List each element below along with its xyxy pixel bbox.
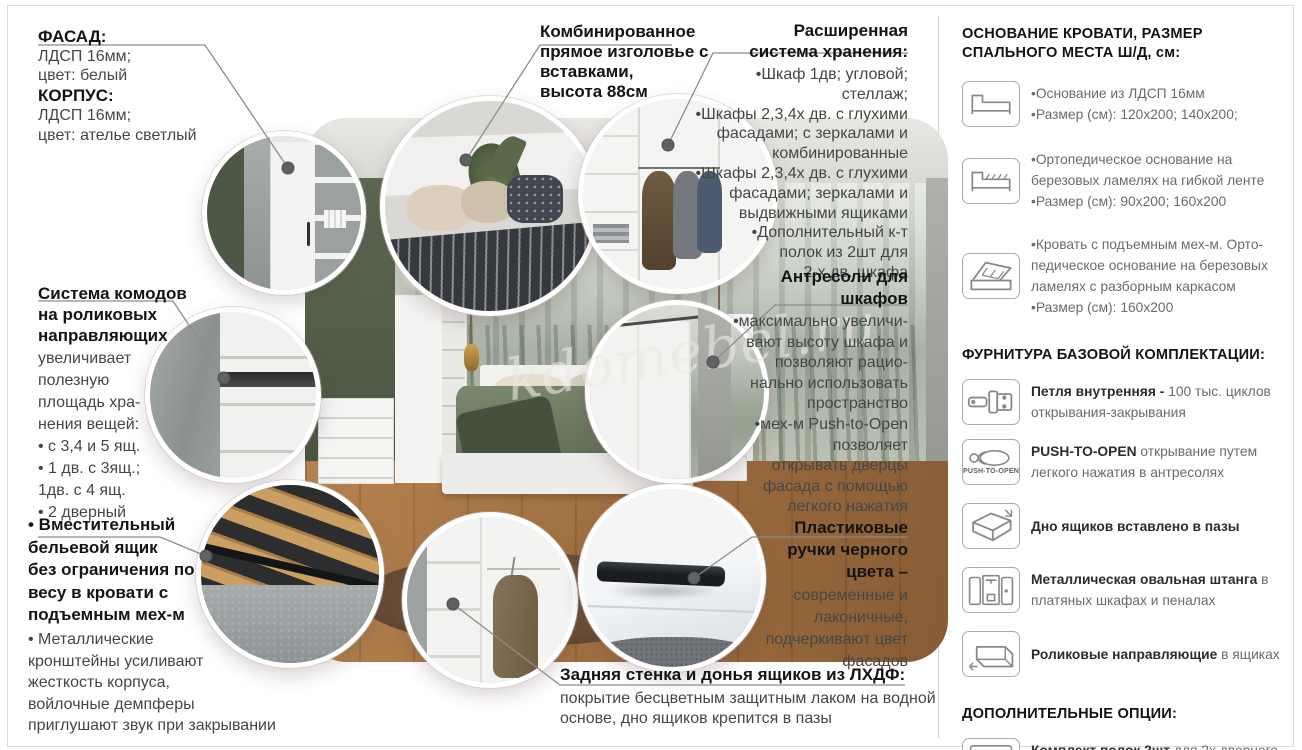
options-item: Комплект полок 2шт для 2х дверного шкафа xyxy=(962,738,1292,750)
bed-base-title: ОСНОВАНИЕ КРОВАТИ, РАЗМЕРСПАЛЬНОГО МЕСТА… xyxy=(962,25,1292,63)
hardware-item-text: Роликовые направляющие в ящиках xyxy=(1031,644,1292,665)
bed-item: •Кровать с подъемным мех-м. Орто-педичес… xyxy=(962,234,1292,318)
callout-body: • Металлическиекронштейны усиливаютжестк… xyxy=(28,629,284,737)
hardware-item-text: Металлическая овальная штанга в платяных… xyxy=(1031,569,1292,611)
bed-item: •Основание из ЛДСП 16мм•Размер (см): 120… xyxy=(962,81,1292,127)
options-item-text: Комплект полок 2шт для 2х дверного шкафа xyxy=(1031,740,1292,750)
shelves-icon xyxy=(962,738,1020,750)
hardware-item-text: PUSH-TO-OPEN открывание путем легкого на… xyxy=(1031,441,1292,483)
callout-title: Антресоли дляшкафов xyxy=(700,266,908,309)
drawer-roller-icon xyxy=(962,631,1020,677)
hardware-item-text: Петля внутренняя - 100 тыс. циклов откры… xyxy=(1031,381,1292,423)
callout-storage-system: Расширеннаясистема хранения: •Шкаф 1дв; … xyxy=(690,20,908,283)
hardware-item: Металлическая овальная штанга в платяных… xyxy=(962,567,1292,613)
photo-circle-wardrobe-interior xyxy=(402,512,578,688)
callout-linen-drawer: • Вместительныйбельевой ящикбез ограниче… xyxy=(28,514,284,737)
infographic-page: kdomebel.ru ФАСАД:ЛДСП 16мм;цвет: белыйК… xyxy=(0,0,1302,750)
callout-back-wall: Задняя стенка и донья ящиков из ЛХДФ: по… xyxy=(560,665,940,729)
bed-slats-icon xyxy=(962,158,1020,204)
push-to-open-label: PUSH-TO-OPEN xyxy=(963,468,1019,476)
hardware-item-text: Дно ящиков вставлено в пазы xyxy=(1031,516,1292,537)
callout-title: Расширеннаясистема хранения: xyxy=(690,20,908,62)
hardware-item: Дно ящиков вставлено в пазы xyxy=(962,503,1292,549)
bed-item-text: •Кровать с подъемным мех-м. Орто-педичес… xyxy=(1031,234,1292,318)
callout-handles: Пластиковыеручки черногоцвета – современ… xyxy=(720,517,908,673)
bed-item-text: •Основание из ЛДСП 16мм•Размер (см): 120… xyxy=(1031,83,1292,125)
callout-body: •максимально увеличи-вают высоту шкафа и… xyxy=(700,312,908,518)
callout-title: • Вместительныйбельевой ящикбез ограниче… xyxy=(28,514,284,627)
callout-facade: ФАСАД:ЛДСП 16мм;цвет: белыйКОРПУС:ЛДСП 1… xyxy=(38,27,268,145)
options-title: ДОПОЛНИТЕЛЬНЫЕ ОПЦИИ: xyxy=(962,705,1292,724)
callout-title: Система комодовна роликовыхнаправляющих xyxy=(38,283,228,346)
bed-item: •Ортопедическое основание наберезовых ла… xyxy=(962,149,1292,212)
chest-of-drawers xyxy=(318,398,394,484)
callout-title: Пластиковыеручки черногоцвета – xyxy=(720,517,908,583)
push-to-open-icon: PUSH-TO-OPEN xyxy=(962,439,1020,485)
callout-body: современные илаконичные,подчеркивают цве… xyxy=(720,585,908,673)
wardrobe-rail-icon xyxy=(962,567,1020,613)
hardware-item: PUSH-TO-OPEN PUSH-TO-OPEN открывание пут… xyxy=(962,439,1292,485)
hardware-title: ФУРНИТУРА БАЗОВОЙ КОМПЛЕКТАЦИИ: xyxy=(962,346,1292,365)
bed-base-icon xyxy=(962,81,1020,127)
photo-circle-headboard xyxy=(380,96,600,316)
drawer-bottom-icon xyxy=(962,503,1020,549)
bed-item-text: •Ортопедическое основание наберезовых ла… xyxy=(1031,149,1292,212)
pendant-lamp-left xyxy=(464,344,478,371)
hardware-item: Роликовые направляющие в ящиках xyxy=(962,631,1292,677)
callout-commode-system: Система комодовна роликовыхнаправляющих … xyxy=(38,283,228,524)
callout-title: Задняя стенка и донья ящиков из ЛХДФ: xyxy=(560,665,940,685)
callout-body: увеличиваетполезнуюплощадь хра-нения вещ… xyxy=(38,348,228,524)
photo-circle-wardrobe-corner xyxy=(202,131,366,295)
callout-body: покрытие бесцветным защитным лаком на во… xyxy=(560,689,940,729)
concrete-column xyxy=(926,178,949,488)
bed-lift-icon xyxy=(962,253,1020,299)
callout-mezzanine: Антресоли дляшкафов •максимально увеличи… xyxy=(700,266,908,518)
hardware-item: Петля внутренняя - 100 тыс. циклов откры… xyxy=(962,379,1292,425)
hinge-icon xyxy=(962,379,1020,425)
callout-body: •Шкаф 1дв; угловой; стеллаж;•Шкафы 2,3,4… xyxy=(690,65,908,283)
right-info-panel: ОСНОВАНИЕ КРОВАТИ, РАЗМЕРСПАЛЬНОГО МЕСТА… xyxy=(962,25,1292,750)
